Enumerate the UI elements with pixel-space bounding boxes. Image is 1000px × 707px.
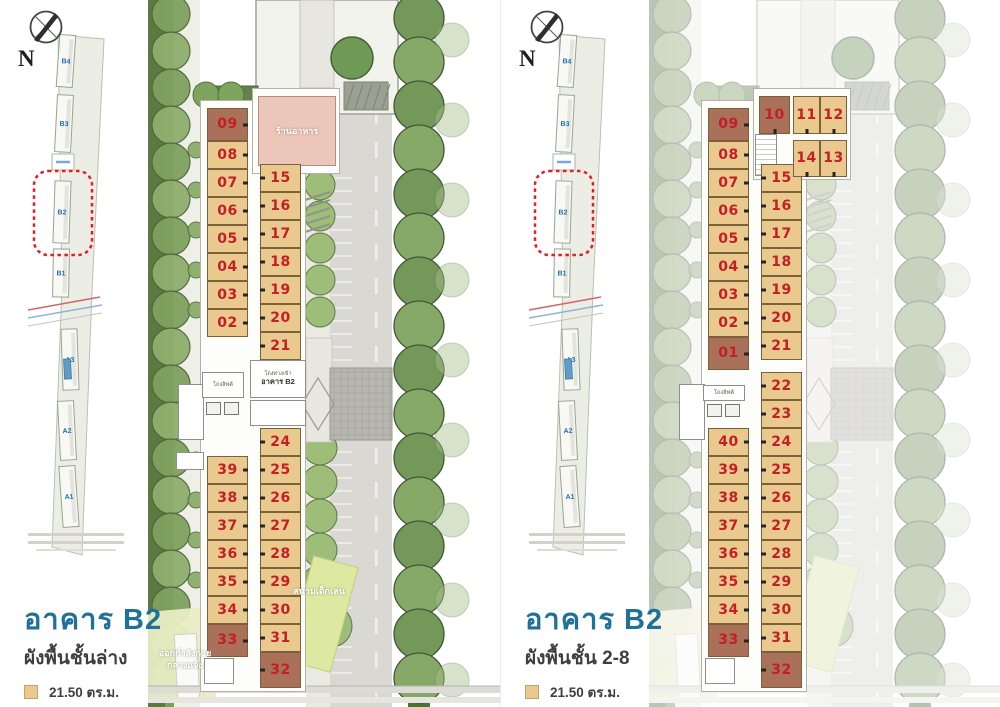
lift-hall: โถงลิฟต์	[703, 385, 745, 401]
unit-05: 05	[207, 225, 248, 253]
unit-39: 39	[207, 456, 248, 484]
unit-12: 12	[820, 96, 847, 134]
unit-10: 10	[759, 96, 790, 134]
unit-28: 28	[761, 540, 802, 568]
minimap-pool	[63, 359, 71, 379]
unit-34: 34	[708, 596, 749, 624]
west-annex	[178, 384, 204, 440]
minimap-building-a2: A2	[57, 401, 76, 461]
west-annex	[679, 384, 705, 440]
unit-18: 18	[260, 248, 301, 276]
playground-label: สนามเด็กเล่น	[282, 586, 356, 598]
unit-13: 13	[820, 140, 847, 177]
lift-hall-label: โถงลิฟต์	[714, 390, 734, 396]
compass: N	[513, 6, 583, 72]
unit-17: 17	[260, 220, 301, 248]
minimap-building-label: A2	[62, 428, 71, 435]
unit-26: 26	[761, 484, 802, 512]
unit-27: 27	[260, 512, 301, 540]
unit-06: 06	[708, 197, 749, 225]
minimap-building-label: A1	[64, 494, 74, 502]
building-title: อาคาร B2	[24, 596, 162, 642]
unit-31: 31	[260, 624, 301, 652]
unit-38: 38	[708, 484, 749, 512]
unit-40: 40	[708, 428, 749, 456]
unit-15: 15	[260, 164, 301, 192]
restaurant-area: ร้านอาหาร	[258, 96, 336, 166]
unit-09: 09	[207, 108, 248, 141]
unit-27: 27	[761, 512, 802, 540]
minimap-building-b2: B2	[554, 181, 572, 244]
legend-swatch-small-unit	[24, 685, 38, 699]
legend-label-small-unit: 21.50 ตร.ม.	[49, 681, 119, 703]
unit-38: 38	[207, 484, 248, 512]
minimap-building-label: B1	[56, 270, 65, 277]
entrance-hall-name-label: อาคาร B2	[261, 378, 295, 387]
compass-n-label: N	[519, 46, 583, 72]
panel-ground-floor: ร้านอาหาร โถงลิฟต์ โถงทางเข้า อาคาร B2 0…	[0, 0, 500, 707]
entrance-hall: โถงทางเข้า อาคาร B2	[250, 360, 306, 398]
unit-14: 14	[793, 140, 820, 177]
unit-26: 26	[260, 484, 301, 512]
unit-07: 07	[708, 169, 749, 197]
minimap-building-label: B2	[558, 209, 567, 216]
minimap-building-b3: B3	[556, 95, 575, 153]
unit-05: 05	[708, 225, 749, 253]
site-minimap: B4B3B2B1A3A2A1	[28, 25, 138, 585]
minimap-building-label: A1	[565, 494, 575, 502]
unit-35: 35	[708, 568, 749, 596]
restaurant-label: ร้านอาหาร	[276, 124, 318, 138]
unit-37: 37	[708, 512, 749, 540]
minimap-building-a2: A2	[558, 401, 577, 461]
unit-04: 04	[708, 253, 749, 281]
unit-03: 03	[708, 281, 749, 309]
panel-floors-2-8: โถงลิฟต์ 0908070605040302011516171819202…	[500, 0, 1000, 707]
unit-28: 28	[260, 540, 301, 568]
unit-39: 39	[708, 456, 749, 484]
unit-32: 32	[761, 652, 802, 688]
unit-03: 03	[207, 281, 248, 309]
exercise-label-line2: กลางแจ้ง	[167, 660, 203, 670]
unit-06: 06	[207, 197, 248, 225]
unit-04: 04	[207, 253, 248, 281]
unit-08: 08	[207, 141, 248, 169]
brochure-page: ร้านอาหาร โถงลิฟต์ โถงทางเข้า อาคาร B2 0…	[0, 0, 1000, 707]
plan-subtitle: ผังพื้นชั้น 2-8	[525, 643, 663, 673]
unit-25: 25	[761, 456, 802, 484]
compass-rose-icon	[12, 6, 82, 48]
unit-21: 21	[761, 332, 802, 360]
elevator	[707, 404, 722, 417]
unit-36: 36	[708, 540, 749, 568]
compass: N	[12, 6, 82, 72]
legend-label-small-unit: 21.50 ตร.ม.	[550, 681, 620, 703]
unit-35: 35	[207, 568, 248, 596]
legend-row-small-unit: 21.50 ตร.ม.	[525, 681, 663, 703]
unit-18: 18	[761, 248, 802, 276]
unit-16: 16	[260, 192, 301, 220]
minimap-building-b2: B2	[53, 181, 71, 244]
unit-21: 21	[260, 332, 301, 360]
unit-09: 09	[708, 108, 749, 141]
minimap-building-label: A2	[563, 428, 572, 435]
legend: 21.50 ตร.ม. 22.00 ตร.ม.	[525, 681, 663, 707]
unit-19: 19	[761, 276, 802, 304]
unit-23: 23	[761, 400, 802, 428]
unit-02: 02	[708, 309, 749, 337]
building-title: อาคาร B2	[525, 596, 663, 642]
elevator	[206, 402, 221, 415]
compass-n-label: N	[18, 46, 82, 72]
title-block: อาคาร B2 ผังพื้นชั้นล่าง 21.50 ตร.ม. 22.…	[24, 596, 162, 707]
unit-08: 08	[708, 141, 749, 169]
unit-25: 25	[260, 456, 301, 484]
legend: 21.50 ตร.ม. 22.00 ตร.ม.	[24, 681, 162, 707]
service-room	[176, 452, 204, 470]
unit-16: 16	[761, 192, 802, 220]
minimap-building-label: B3	[560, 121, 569, 128]
office-room	[250, 400, 306, 426]
unit-37: 37	[207, 512, 248, 540]
exercise-label-line1: ออกกำลังกาย	[159, 648, 211, 658]
minimap-building-label: B2	[57, 209, 66, 216]
unit-29: 29	[761, 568, 802, 596]
unit-36: 36	[207, 540, 248, 568]
unit-19: 19	[260, 276, 301, 304]
unit-24: 24	[260, 428, 301, 456]
minimap-building-label: B1	[557, 270, 566, 277]
unit-01: 01	[708, 337, 749, 370]
unit-22: 22	[761, 372, 802, 400]
minimap-pool	[564, 359, 572, 379]
site-minimap: B4B3B2B1A3A2A1	[529, 25, 639, 585]
elevator	[725, 404, 740, 417]
unit-30: 30	[761, 596, 802, 624]
unit-07: 07	[207, 169, 248, 197]
unit-31: 31	[761, 624, 802, 652]
unit-20: 20	[260, 304, 301, 332]
title-block: อาคาร B2 ผังพื้นชั้น 2-8 21.50 ตร.ม. 22.…	[525, 596, 663, 707]
unit-33: 33	[708, 624, 749, 657]
legend-row-small-unit: 21.50 ตร.ม.	[24, 681, 162, 703]
compass-rose-icon	[513, 6, 583, 48]
minimap-building-label: B3	[59, 121, 68, 128]
elevator	[224, 402, 239, 415]
unit-24: 24	[761, 428, 802, 456]
lift-hall: โถงลิฟต์	[202, 372, 244, 398]
unit-02: 02	[207, 309, 248, 337]
service-room-bottom	[705, 658, 735, 684]
plan-subtitle: ผังพื้นชั้นล่าง	[24, 643, 162, 673]
unit-30: 30	[260, 596, 301, 624]
unit-20: 20	[761, 304, 802, 332]
unit-32: 32	[260, 652, 301, 688]
unit-11: 11	[793, 96, 820, 134]
lift-hall-label: โถงลิฟต์	[213, 382, 233, 388]
minimap-building-b3: B3	[55, 95, 74, 153]
unit-34: 34	[207, 596, 248, 624]
unit-17: 17	[761, 220, 802, 248]
legend-swatch-small-unit	[525, 685, 539, 699]
